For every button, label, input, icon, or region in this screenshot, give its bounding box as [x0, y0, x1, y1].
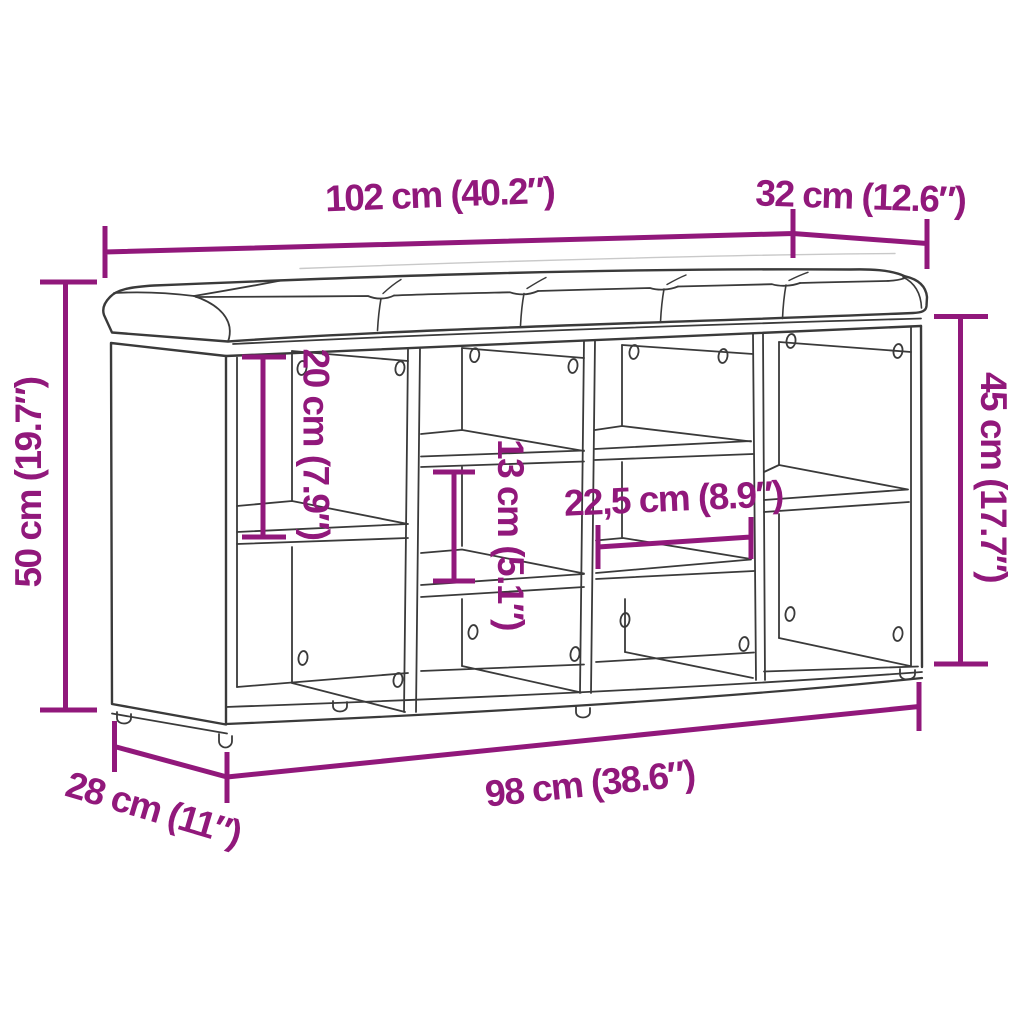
- svg-text:28 cm (11″): 28 cm (11″): [61, 764, 246, 855]
- svg-text:98 cm (38.6″): 98 cm (38.6″): [483, 753, 696, 815]
- svg-text:45 cm (17.7″): 45 cm (17.7″): [973, 372, 1014, 582]
- svg-text:50 cm (19.7″): 50 cm (19.7″): [8, 377, 49, 587]
- svg-text:20 cm (7.9″): 20 cm (7.9″): [296, 349, 337, 540]
- svg-text:102 cm (40.2″): 102 cm (40.2″): [324, 170, 555, 220]
- svg-text:13 cm (5.1″): 13 cm (5.1″): [490, 439, 531, 630]
- svg-text:32 cm (12.6″): 32 cm (12.6″): [755, 172, 967, 220]
- svg-text:22,5 cm (8.9″): 22,5 cm (8.9″): [563, 473, 784, 524]
